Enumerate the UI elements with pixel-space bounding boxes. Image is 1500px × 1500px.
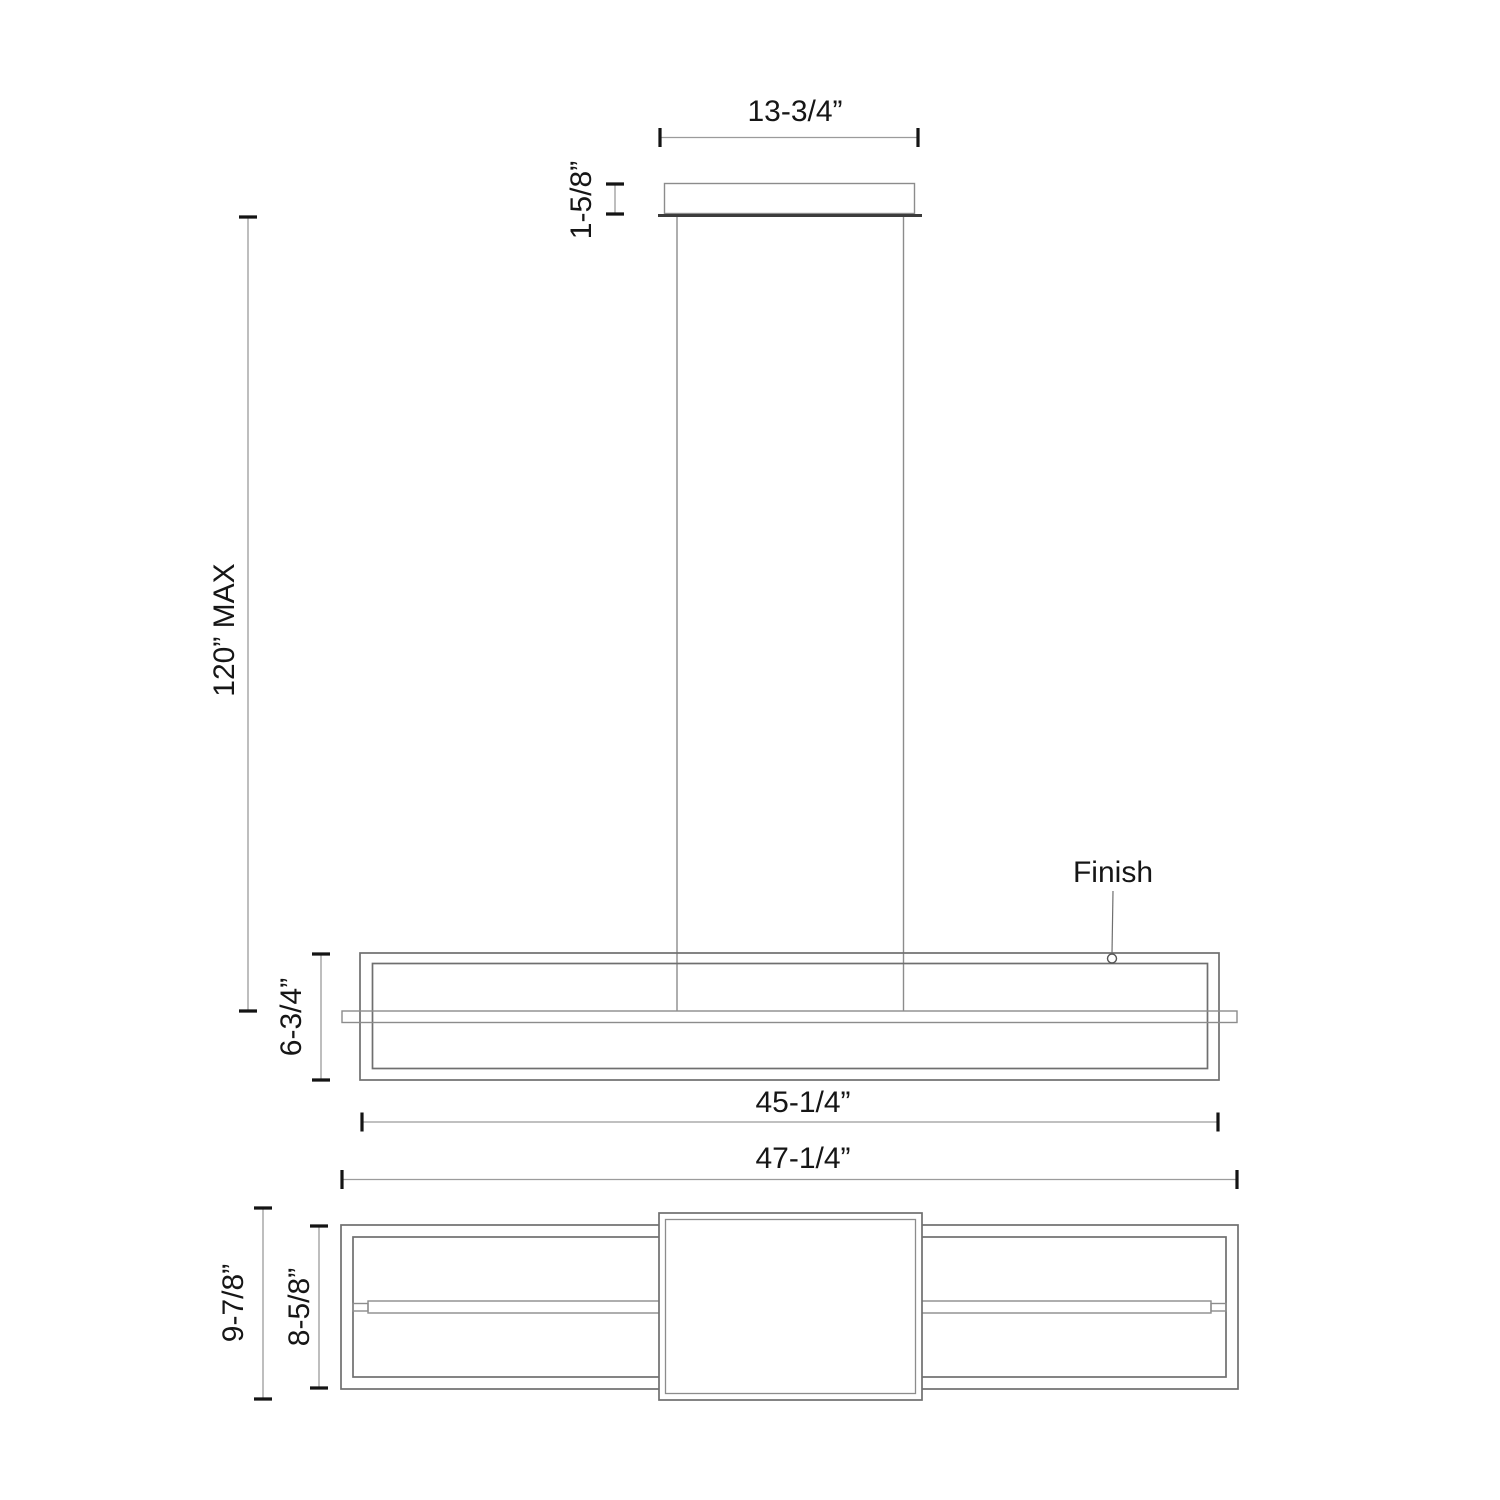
dim-overall-length: 47-1/4” xyxy=(342,1142,1237,1189)
fixture-height-label: 6-3/4” xyxy=(275,978,308,1056)
finish-callout: Finish xyxy=(1073,856,1153,963)
fixture-body-outer xyxy=(360,953,1219,1080)
spec-drawing-page: 13-3/4” 1-5/8” 120” MAX 6-3/4” Finish xyxy=(0,0,1500,1500)
fixture-dimension-drawing: 13-3/4” 1-5/8” 120” MAX 6-3/4” Finish xyxy=(0,0,1500,1500)
dim-max-drop: 120” MAX xyxy=(208,217,257,1011)
plan-bar-endcap-right xyxy=(1211,1304,1226,1312)
canopy-width-label: 13-3/4” xyxy=(747,95,842,128)
dim-body-depth: 8-5/8” xyxy=(283,1226,328,1388)
dim-canopy-width: 13-3/4” xyxy=(660,95,918,147)
dim-canopy-height: 1-5/8” xyxy=(565,161,624,239)
fixture-length-label: 45-1/4” xyxy=(755,1086,850,1119)
finish-indicator-circle xyxy=(1108,954,1117,963)
overall-depth-label: 9-7/8” xyxy=(217,1264,250,1342)
dim-fixture-length: 45-1/4” xyxy=(362,1086,1218,1132)
plan-bar-endcap-left xyxy=(353,1304,368,1312)
finish-label: Finish xyxy=(1073,856,1153,889)
canopy-height-label: 1-5/8” xyxy=(565,161,598,239)
finish-leader-line xyxy=(1112,891,1113,954)
overall-length-label: 47-1/4” xyxy=(755,1142,850,1175)
fixture-body-inner xyxy=(373,964,1208,1069)
canopy-outline xyxy=(665,184,915,214)
plan-canopy-inner xyxy=(666,1220,916,1394)
dim-overall-depth: 9-7/8” xyxy=(217,1208,272,1399)
body-depth-label: 8-5/8” xyxy=(283,1268,316,1346)
dim-fixture-height: 6-3/4” xyxy=(275,954,330,1080)
light-bar xyxy=(342,1011,1237,1023)
max-drop-label: 120” MAX xyxy=(208,563,241,696)
